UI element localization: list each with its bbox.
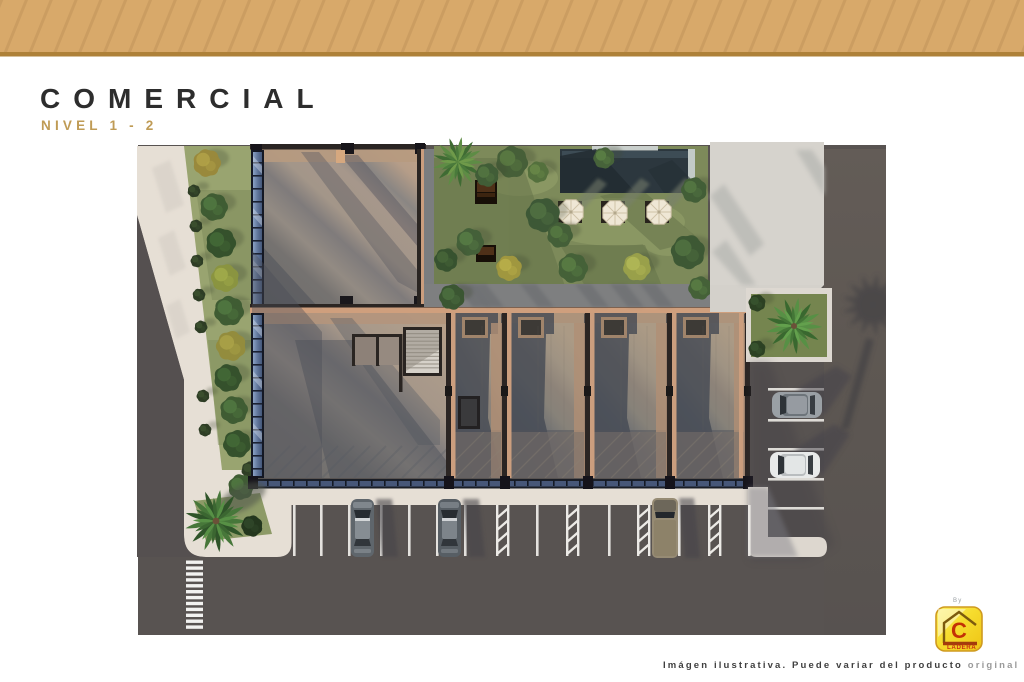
svg-text:C: C xyxy=(951,618,967,643)
svg-text:By: By xyxy=(953,598,962,604)
svg-text:NIVEL 1 - 2: NIVEL 1 - 2 xyxy=(41,118,157,133)
svg-text:Imágen ilustrativa. Puede vari: Imágen ilustrativa. Puede variar del pro… xyxy=(663,660,1019,671)
svg-text:COMERCIAL: COMERCIAL xyxy=(40,83,327,114)
svg-text:LADERA: LADERA xyxy=(947,644,976,651)
